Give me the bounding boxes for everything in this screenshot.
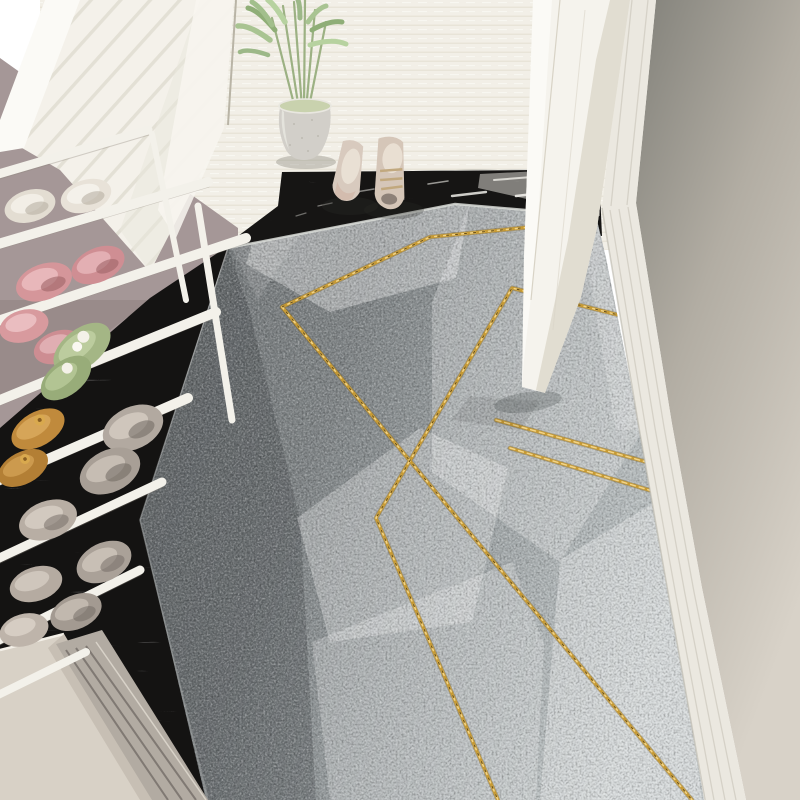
entryway-scene xyxy=(0,0,800,800)
entryway-photo xyxy=(0,0,800,800)
